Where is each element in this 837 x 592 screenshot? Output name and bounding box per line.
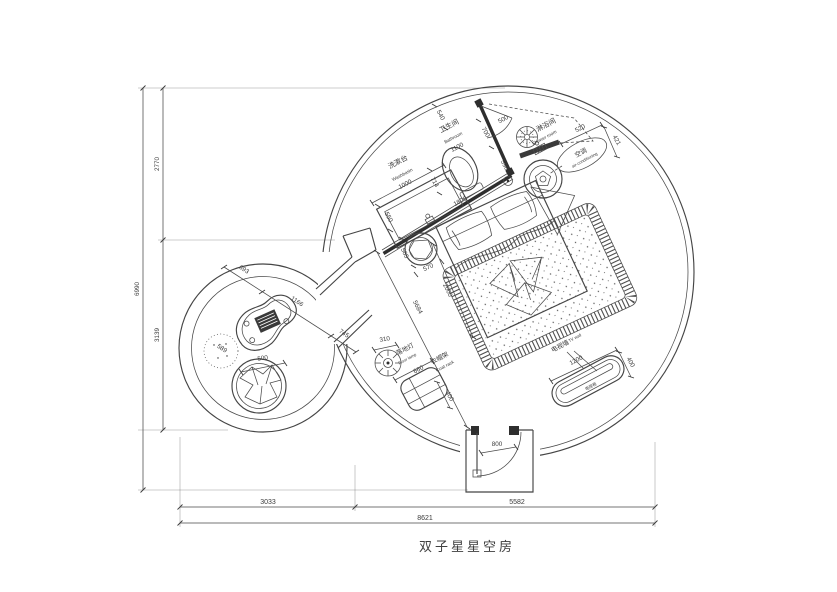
- dim-8621: 8621: [417, 515, 433, 522]
- dim-310: 310: [379, 335, 391, 344]
- dim-6990: 6990: [134, 282, 141, 297]
- entry-zone: 800: [460, 426, 540, 492]
- toilet: [435, 141, 487, 201]
- bedside-table: [405, 233, 437, 265]
- dim-1000: 1000: [397, 178, 413, 191]
- lounge-chair: 500: [232, 354, 287, 413]
- dim-589: 589: [216, 343, 229, 355]
- svg-text:洗漱台: 洗漱台: [386, 153, 409, 171]
- dim-2770: 2770: [154, 157, 161, 172]
- dimension-bottom-horizontal: 3033 5582 8621: [178, 437, 658, 527]
- floor-plan-page: 6990 2770 3139 3033 5582 8621 1800: [0, 0, 837, 592]
- floor-lamp-label: 落地灯 Floor lamp: [394, 340, 417, 365]
- dim-3033: 3033: [260, 499, 276, 506]
- tv-cabinet: 电视柜: [547, 351, 628, 411]
- laptop: [254, 309, 281, 333]
- dim-5582: 5582: [509, 499, 525, 506]
- dim-1166: 1166: [289, 295, 305, 309]
- bathroom-zone: 1800 500 洗漱台 Washbasin 1000 550: [370, 98, 515, 257]
- floor-plan-drawing: 6990 2770 3139 3033 5582 8621 1800: [0, 0, 837, 592]
- dotted-circle: 589: [204, 334, 238, 368]
- dim-3139: 3139: [154, 328, 161, 343]
- svg-text:5684: 5684: [411, 299, 424, 315]
- dim-550: 550: [383, 211, 394, 224]
- coat-rack-label: 660 衣帽架 Coat rack: [411, 348, 455, 382]
- shower-threshold: [520, 142, 559, 156]
- dim-570: 570: [422, 262, 435, 273]
- dim-500-chair: 500: [257, 354, 269, 363]
- coat-rack: [398, 365, 451, 414]
- tv-zone: 电视柜 电视墙 TV wall 1200 400: [547, 331, 636, 411]
- dim-800: 800: [492, 441, 503, 448]
- bathroom-label: 卫生间 Bathroom 1100: [437, 117, 465, 154]
- drawing-title: 双子星星空房: [419, 539, 515, 554]
- dim-1100: 1100: [450, 141, 466, 154]
- pillow: [445, 209, 495, 253]
- dim-500-door: 500: [497, 114, 510, 125]
- dim-540: 540: [435, 109, 446, 122]
- dim-421: 421: [611, 134, 622, 147]
- floor-lamp-zone: 落地灯 Floor lamp 310: [372, 335, 418, 376]
